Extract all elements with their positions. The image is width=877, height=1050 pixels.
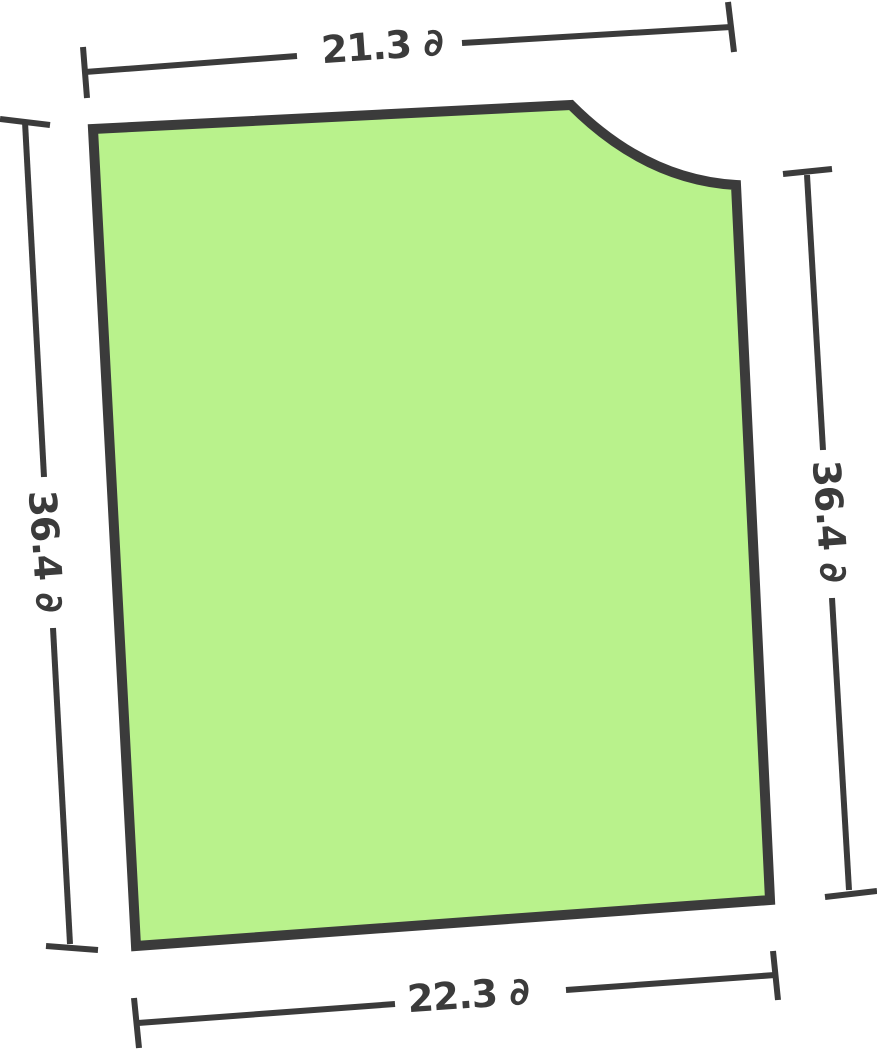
geometry-figure: 21.3 ∂ 36.4 ∂ 36.4 ∂ 22.3 ∂ [0,0,877,1050]
dim-right-line-top-segment [807,175,823,450]
dim-top-right-tick [728,2,734,52]
dim-bottom-line-left-segment [138,1004,395,1023]
dim-top-line-left-segment [85,56,297,72]
dim-right-bottom-tick [825,891,877,897]
dimension-label-top: 21.3 ∂ [320,20,445,72]
dim-right-top-tick [783,169,832,174]
dim-bottom-line-right-segment [566,975,775,990]
dim-left-line-top-segment [25,122,44,477]
dim-left-bottom-tick [46,946,98,950]
dim-bottom-right-tick [773,951,778,1000]
dim-top-line-right-segment [462,27,731,43]
dimension-label-right: 36.4 ∂ [804,459,856,584]
dimension-label-left: 36.4 ∂ [20,489,72,614]
dimension-label-bottom: 22.3 ∂ [406,969,531,1021]
dim-right-line-bottom-segment [832,598,849,890]
shaded-region [93,105,770,946]
dim-left-line-bottom-segment [53,628,70,944]
